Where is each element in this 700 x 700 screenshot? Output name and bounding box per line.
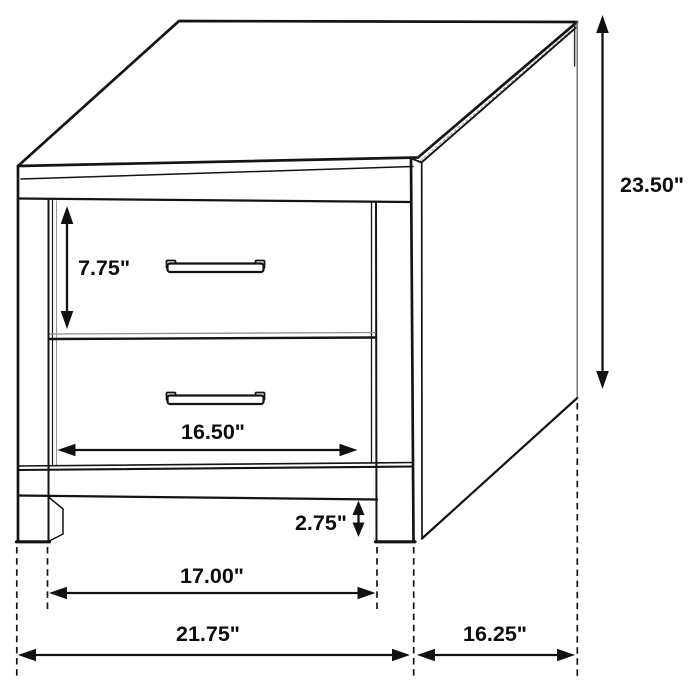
stretcher-step-top xyxy=(49,497,64,509)
arrowhead-up xyxy=(61,206,74,224)
dimension-label-leg-span-inner: 17.00" xyxy=(180,564,244,588)
arrowhead-up xyxy=(596,15,609,33)
drawer-opening-top-edge xyxy=(18,199,411,203)
dimension-leg-span-inner: 17.00" xyxy=(49,564,376,599)
dimension-base-clearance: 2.75" xyxy=(295,501,365,538)
dimension-diagram-page: 7.75" 23.50" 16.50" 2.75" 17 xyxy=(0,0,700,700)
arrowhead-right xyxy=(358,587,376,600)
arrowhead-left xyxy=(49,587,67,600)
bottom-rail-top-edge xyxy=(18,467,413,471)
dimension-label-overall-width: 21.75" xyxy=(176,622,240,646)
dimension-drawer-height: 7.75" xyxy=(61,206,130,329)
dimension-overall-depth: 16.25" xyxy=(417,622,575,661)
arrowhead-left xyxy=(18,649,36,662)
bottom-rail-bottom-edge xyxy=(18,496,377,500)
nightstand-dimension-diagram: 7.75" 23.50" 16.50" 2.75" 17 xyxy=(0,0,700,700)
arrowhead-down xyxy=(596,371,609,389)
dimension-label-overall-height: 23.50" xyxy=(620,173,684,197)
dimension-overall-width: 21.75" xyxy=(18,622,410,661)
dimension-drawer-width: 16.50" xyxy=(58,420,358,456)
front-right-edge xyxy=(411,159,414,542)
stretcher-step-bottom xyxy=(49,534,64,542)
arrowhead-left xyxy=(417,649,435,662)
handle-bar xyxy=(168,396,264,405)
dimension-overall-height: 23.50" xyxy=(596,15,684,389)
arrowhead-up xyxy=(353,501,365,516)
arrowhead-left xyxy=(58,444,76,457)
arrowhead-down xyxy=(353,523,365,538)
front-frame xyxy=(18,159,414,542)
drawer-1-handle xyxy=(167,261,265,273)
right-stile-inner-edge xyxy=(376,202,377,541)
arrowhead-right xyxy=(340,444,358,457)
drawer-divider-edge xyxy=(50,338,375,340)
drawer-divider-soft-edge xyxy=(50,333,375,335)
dimension-label-drawer-height: 7.75" xyxy=(78,256,130,280)
bottom-rail-top-soft-edge xyxy=(18,463,413,467)
base-stretcher xyxy=(49,497,64,542)
dimension-label-base-clearance: 2.75" xyxy=(295,511,347,535)
dimension-label-drawer-width: 16.50" xyxy=(181,420,245,444)
top-face-inner-front-edge xyxy=(21,167,413,180)
dimension-label-overall-depth: 16.25" xyxy=(463,622,527,646)
nightstand-drawing xyxy=(17,21,578,542)
handle-bar xyxy=(168,264,264,273)
drawer-2-handle xyxy=(167,393,265,405)
arrowhead-right xyxy=(392,649,410,662)
arrowhead-down xyxy=(61,311,74,329)
arrowhead-right xyxy=(557,649,575,662)
